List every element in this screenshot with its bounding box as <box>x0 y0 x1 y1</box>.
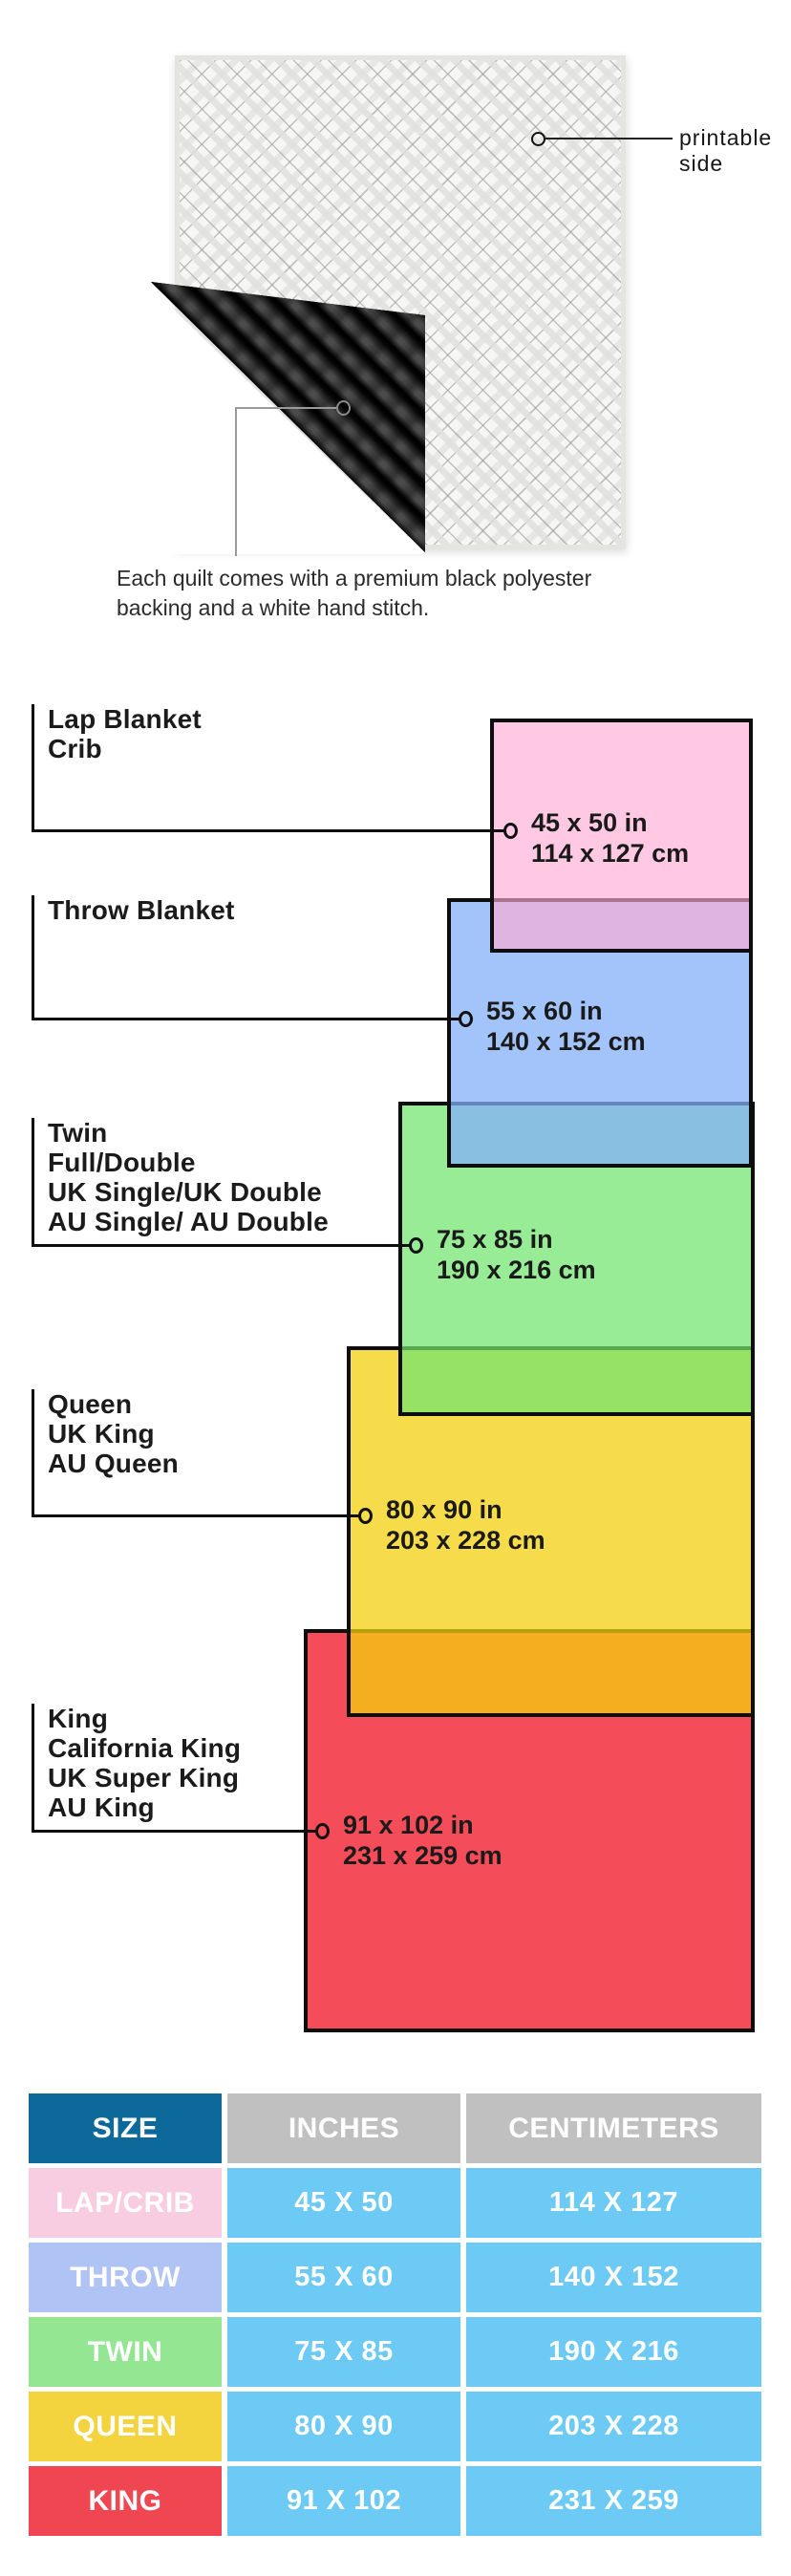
label-twin-line1: Twin <box>48 1118 329 1148</box>
label-twin: Twin Full/Double UK Single/UK Double AU … <box>48 1118 329 1236</box>
label-queen-line1: Queen <box>48 1389 179 1419</box>
bracket-throw-vertical <box>32 895 34 1020</box>
table-row-lap-inches: 45 X 50 <box>227 2168 460 2238</box>
dim-twin-cm: 190 x 216 cm <box>437 1255 596 1285</box>
backing-callout-line-horizontal <box>235 407 336 409</box>
size-table: SIZE INCHES CENTIMETERS LAP/CRIB 45 X 50… <box>29 2093 761 2536</box>
backing-marker-icon <box>336 400 351 416</box>
label-twin-line3: UK Single/UK Double <box>48 1177 329 1207</box>
table-row-king-cm: 231 X 259 <box>466 2466 761 2536</box>
label-king: King California King UK Super King AU Ki… <box>48 1704 241 1822</box>
label-king-line4: AU King <box>48 1792 241 1822</box>
label-throw-line1: Throw Blanket <box>48 895 235 925</box>
label-twin-line2: Full/Double <box>48 1148 329 1177</box>
label-queen-line3: AU Queen <box>48 1449 179 1478</box>
table-row-lap-cm: 114 X 127 <box>466 2168 761 2238</box>
table-row-king-inches: 91 X 102 <box>227 2466 460 2536</box>
label-king-line3: UK Super King <box>48 1763 241 1792</box>
label-lap: Lap Blanket Crib <box>48 704 202 763</box>
table-row-throw-cm: 140 X 152 <box>466 2243 761 2312</box>
dim-twin: 75 x 85 in 190 x 216 cm <box>437 1224 596 1285</box>
bracket-queen-vertical <box>32 1389 34 1517</box>
dim-king-inches: 91 x 102 in <box>343 1810 502 1840</box>
table-row-queen-size: QUEEN <box>29 2392 222 2461</box>
label-throw: Throw Blanket <box>48 895 235 925</box>
table-row-king-size: KING <box>29 2466 222 2536</box>
quilt-caption: Each quilt comes with a premium black po… <box>117 564 591 623</box>
dim-king: 91 x 102 in 231 x 259 cm <box>343 1810 502 1871</box>
table-row-lap-size: LAP/CRIB <box>29 2168 222 2238</box>
bracket-twin-vertical <box>32 1118 34 1247</box>
printable-side-label: printable side <box>679 125 772 177</box>
size-chart-infographic: printable side Each quilt comes with a p… <box>0 0 791 2576</box>
dim-marker-twin-icon <box>409 1237 423 1254</box>
dim-king-cm: 231 x 259 cm <box>343 1840 502 1871</box>
dim-throw-cm: 140 x 152 cm <box>486 1026 646 1057</box>
label-queen: Queen UK King AU Queen <box>48 1389 179 1478</box>
table-row-twin-inches: 75 X 85 <box>227 2317 460 2387</box>
bracket-lap-vertical <box>32 704 34 831</box>
printable-side-marker-icon <box>531 132 545 146</box>
table-row-throw-inches: 55 X 60 <box>227 2243 460 2312</box>
bracket-lap-horizontal <box>32 829 505 832</box>
quilt-caption-line2: backing and a white hand stitch. <box>117 593 591 623</box>
printable-side-label-line2: side <box>679 151 772 177</box>
table-row-queen-cm: 203 X 228 <box>466 2392 761 2461</box>
dim-queen-inches: 80 x 90 in <box>386 1494 545 1525</box>
label-twin-line4: AU Single/ AU Double <box>48 1207 329 1236</box>
dim-throw: 55 x 60 in 140 x 152 cm <box>486 996 646 1057</box>
backing-callout-line-vertical <box>235 407 237 556</box>
table-header-inches: INCHES <box>227 2093 460 2163</box>
table-header-size: SIZE <box>29 2093 222 2163</box>
bracket-twin-horizontal <box>32 1244 411 1247</box>
bracket-queen-horizontal <box>32 1514 360 1517</box>
dim-throw-inches: 55 x 60 in <box>486 996 646 1026</box>
table-row-throw-size: THROW <box>29 2243 222 2312</box>
printable-side-callout-line <box>545 138 673 140</box>
dim-twin-inches: 75 x 85 in <box>437 1224 596 1255</box>
bracket-king-horizontal <box>32 1830 317 1833</box>
dim-marker-lap-icon <box>503 823 518 839</box>
label-king-line2: California King <box>48 1733 241 1763</box>
dim-marker-queen-icon <box>358 1508 373 1524</box>
table-row-twin-cm: 190 X 216 <box>466 2317 761 2387</box>
dim-lap-cm: 114 x 127 cm <box>531 838 689 869</box>
bracket-king-vertical <box>32 1704 34 1833</box>
label-lap-line2: Crib <box>48 734 202 763</box>
table-row-twin-size: TWIN <box>29 2317 222 2387</box>
dim-queen: 80 x 90 in 203 x 228 cm <box>386 1494 545 1556</box>
bracket-throw-horizontal <box>32 1018 460 1020</box>
label-queen-line2: UK King <box>48 1419 179 1449</box>
dim-lap: 45 x 50 in 114 x 127 cm <box>531 807 689 869</box>
dim-marker-king-icon <box>315 1823 330 1839</box>
dim-lap-inches: 45 x 50 in <box>531 807 689 838</box>
printable-side-label-line1: printable <box>679 125 772 151</box>
table-header-centimeters: CENTIMETERS <box>466 2093 761 2163</box>
label-lap-line1: Lap Blanket <box>48 704 202 734</box>
dim-marker-throw-icon <box>459 1011 473 1027</box>
label-king-line1: King <box>48 1704 241 1733</box>
table-row-queen-inches: 80 X 90 <box>227 2392 460 2461</box>
dim-queen-cm: 203 x 228 cm <box>386 1525 545 1556</box>
quilt-caption-line1: Each quilt comes with a premium black po… <box>117 564 591 593</box>
